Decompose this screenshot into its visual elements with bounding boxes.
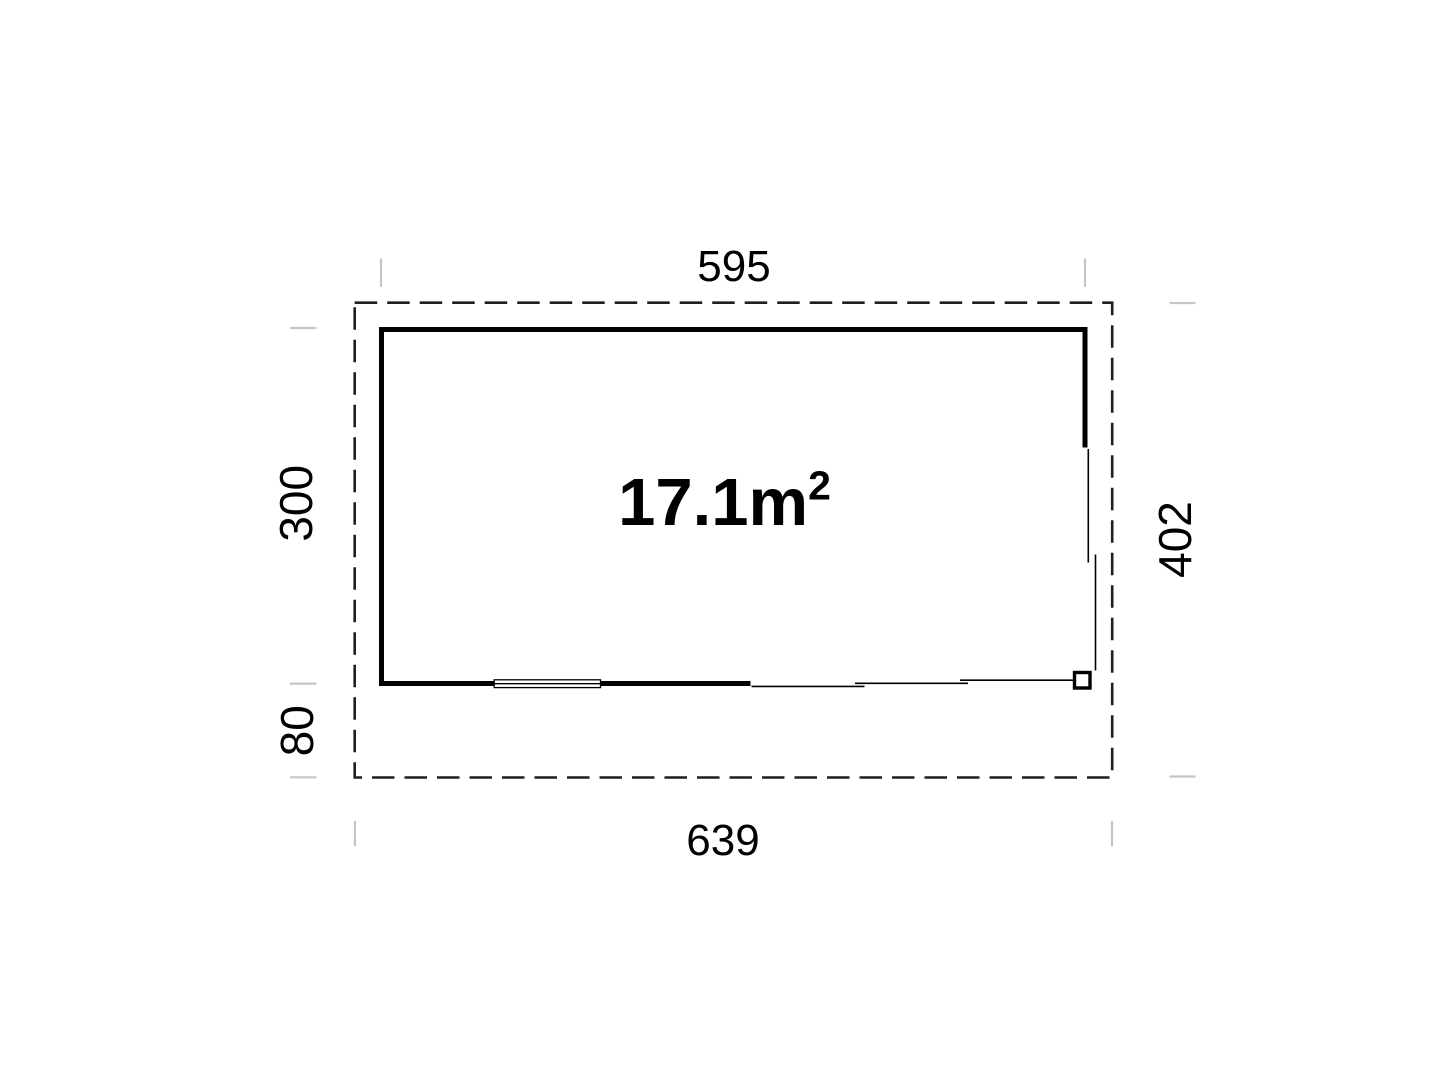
svg-text:300: 300	[270, 465, 322, 542]
svg-text:80: 80	[271, 705, 323, 756]
svg-text:402: 402	[1149, 501, 1201, 578]
svg-text:639: 639	[686, 816, 759, 865]
svg-text:595: 595	[697, 242, 770, 291]
svg-text:17.1m2: 17.1m2	[618, 463, 831, 541]
